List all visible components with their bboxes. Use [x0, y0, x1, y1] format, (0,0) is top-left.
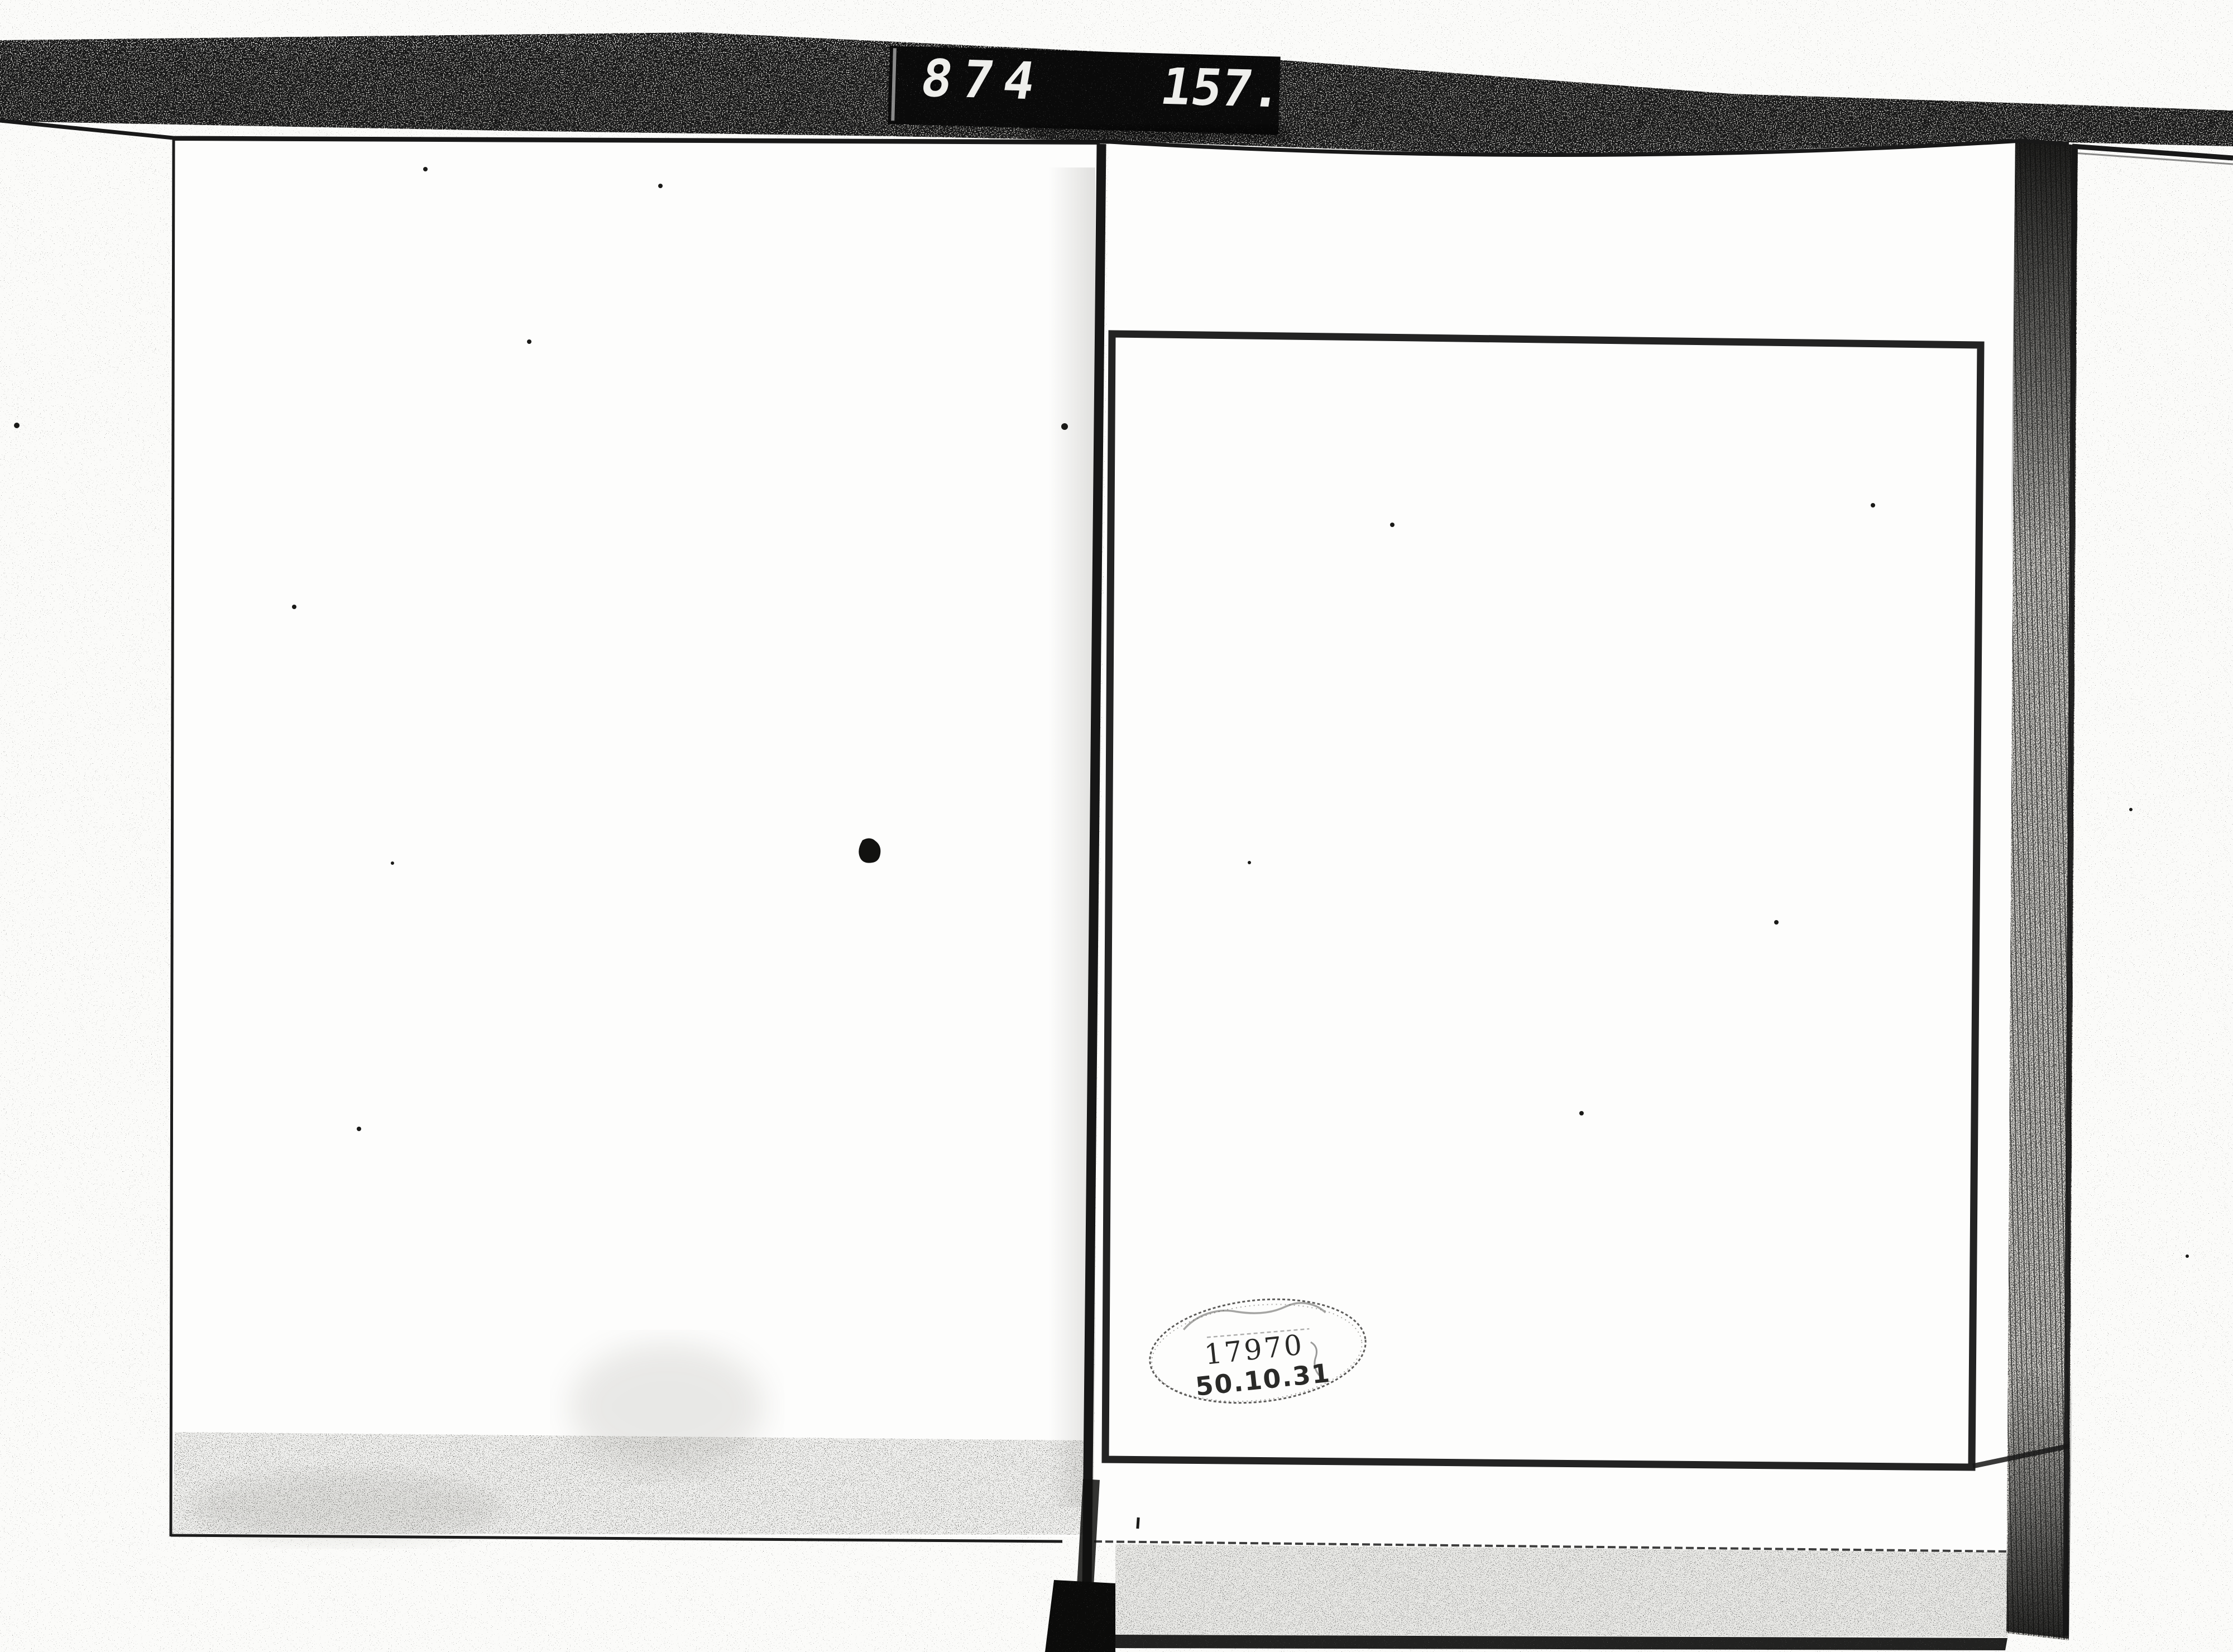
fore-edge-bottom-shadow [2006, 1368, 2072, 1639]
dust-speck [357, 1127, 361, 1131]
gutter-ink-blob-specks [1045, 1580, 1115, 1652]
counter-frame-value: 157. [1157, 58, 1287, 119]
left-page [171, 139, 1100, 1542]
scanned-book-spread: 874 157. 17970 50.10.31 [0, 0, 2233, 1652]
dust-speck [1774, 920, 1779, 925]
dust-speck [1390, 523, 1395, 527]
left-page-stain [569, 1343, 765, 1471]
left-page-surface [171, 139, 1100, 1537]
dust-speck [423, 167, 428, 171]
counter-shadow [1033, 126, 1290, 141]
dust-speck [1248, 861, 1251, 864]
bottom-page-block-strip-texture [1115, 1544, 2010, 1637]
dust-speck [391, 861, 394, 865]
dust-speck [14, 423, 20, 428]
fore-edge-top-shadow [2011, 140, 2078, 558]
dust-speck [292, 605, 296, 609]
dust-speck [2186, 1254, 2189, 1258]
dust-speck [527, 339, 531, 344]
dust-speck [1579, 1111, 1584, 1115]
spine-gutter-thickening [1085, 1479, 1091, 1587]
film-frame-counter: 874 157. [888, 46, 1287, 135]
dust-speck [2129, 808, 2133, 811]
counter-reel-value: 874 [917, 48, 1050, 111]
bottom-page-block [1115, 1544, 2010, 1650]
left-page-corner-smudge [190, 1473, 502, 1542]
scan-canvas: 874 157. 17970 50.10.31 [0, 0, 2233, 1652]
dust-speck [1061, 423, 1068, 430]
dust-speck [658, 184, 663, 188]
dust-speck [1871, 503, 1875, 507]
